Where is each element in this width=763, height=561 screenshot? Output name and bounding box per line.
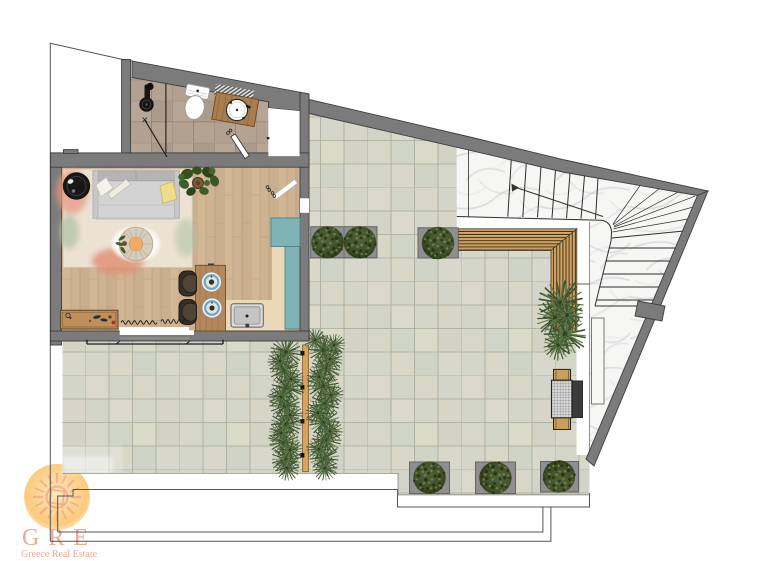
- svg-text:Greece Real Estate: Greece Real Estate: [21, 549, 98, 560]
- svg-text:GRE: GRE: [22, 525, 97, 551]
